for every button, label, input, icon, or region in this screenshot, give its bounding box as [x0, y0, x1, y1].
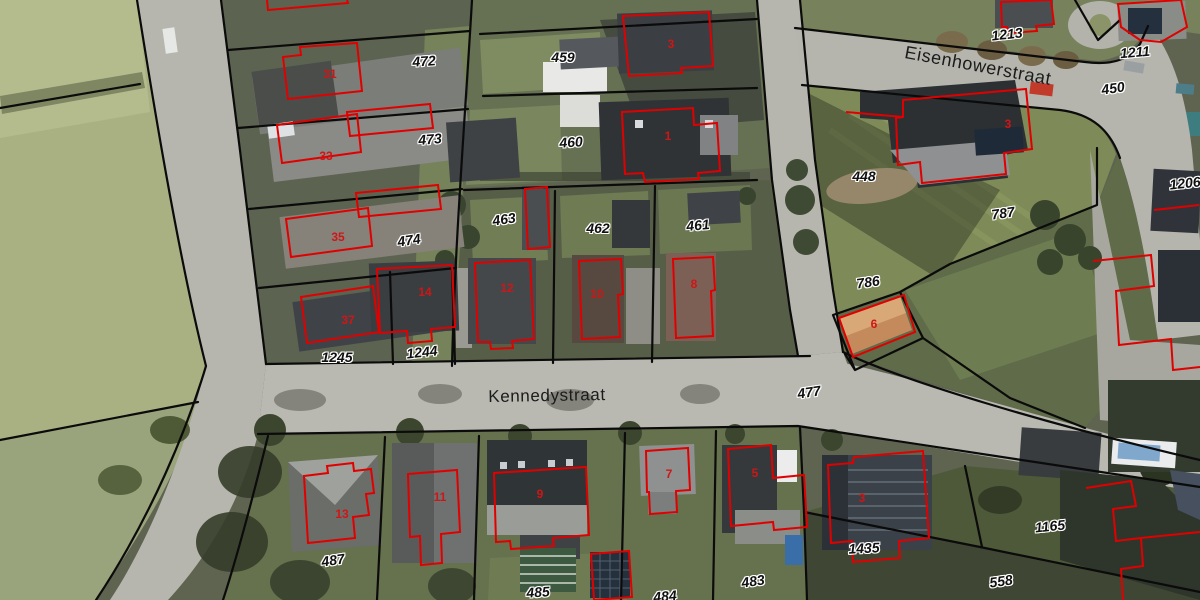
parcel-label-1213: 1213: [991, 24, 1024, 43]
parcel-label-1435: 1435: [848, 539, 880, 557]
parcel-label-487: 487: [320, 550, 345, 569]
street-label-kennedystraat: Kennedystraat: [488, 385, 606, 407]
building-number-3: 3: [859, 491, 866, 505]
parcel-label-483: 483: [740, 571, 765, 590]
parcel-label-786: 786: [855, 272, 880, 291]
parcel-label-1245: 1245: [321, 349, 352, 365]
parcel-label-1206: 1206: [1169, 173, 1200, 192]
building-number-35: 35: [331, 230, 344, 244]
parcel-label-558: 558: [988, 571, 1013, 590]
parcel-label-463: 463: [491, 209, 516, 228]
building-number-10: 10: [590, 287, 603, 301]
building-number-37: 37: [341, 313, 354, 327]
parcel-label-473: 473: [418, 130, 443, 148]
building-number-31: 31: [323, 67, 336, 81]
parcel-label-1244: 1244: [406, 342, 439, 361]
parcel-label-472: 472: [412, 52, 436, 70]
parcel-label-450: 450: [1100, 78, 1125, 97]
parcel-label-484: 484: [653, 587, 678, 600]
parcel-label-787: 787: [990, 203, 1015, 222]
parcel-label-459: 459: [551, 49, 574, 65]
parcel-label-1165: 1165: [1034, 516, 1066, 535]
parcel-label-462: 462: [586, 220, 609, 236]
aerial-map-canvas[interactable]: 4724594734604744634624614487867871213121…: [0, 0, 1200, 600]
building-number-14: 14: [418, 285, 431, 299]
street-label-eisenhowerstraat: Eisenhowerstraat: [903, 42, 1053, 90]
building-number-11: 11: [434, 490, 447, 504]
parcel-label-460: 460: [559, 133, 583, 151]
building-number-3: 3: [668, 37, 675, 51]
building-number-6: 6: [871, 317, 878, 331]
building-number-7: 7: [666, 467, 673, 481]
parcel-label-485: 485: [526, 583, 550, 600]
building-number-9: 9: [537, 487, 544, 501]
building-number-33: 33: [319, 149, 332, 163]
building-number-13: 13: [335, 507, 348, 521]
parcel-label-448: 448: [852, 168, 875, 184]
parcel-label-1211: 1211: [1119, 43, 1150, 62]
parcel-label-461: 461: [686, 216, 711, 234]
map-label-overlay: 4724594734604744634624614487867871213121…: [0, 0, 1200, 600]
building-number-5: 5: [752, 466, 759, 480]
building-number-3: 3: [1005, 117, 1012, 131]
building-number-12: 12: [500, 281, 513, 295]
parcel-label-477: 477: [796, 382, 821, 401]
building-number-8: 8: [691, 277, 698, 291]
parcel-label-474: 474: [396, 230, 421, 249]
building-number-1: 1: [665, 129, 672, 143]
